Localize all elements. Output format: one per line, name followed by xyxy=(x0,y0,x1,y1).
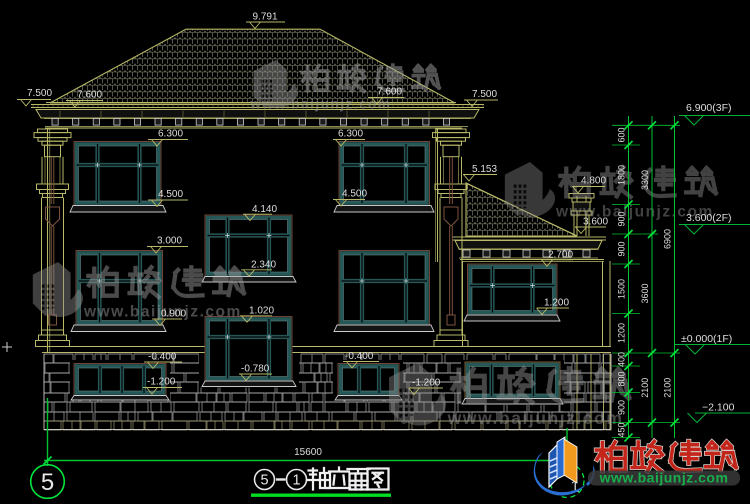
svg-text:-0.400: -0.400 xyxy=(345,351,374,362)
svg-text:1: 1 xyxy=(292,473,300,489)
svg-text:4.500: 4.500 xyxy=(342,189,367,200)
svg-text:15600: 15600 xyxy=(294,447,322,458)
svg-text:450: 450 xyxy=(617,422,627,437)
svg-text:1800: 1800 xyxy=(617,165,627,185)
svg-text:3.600: 3.600 xyxy=(583,217,608,228)
svg-text:3300: 3300 xyxy=(640,170,650,190)
svg-text:9.791: 9.791 xyxy=(253,12,278,23)
svg-text:0.900: 0.900 xyxy=(161,309,186,320)
svg-text:2100: 2100 xyxy=(663,378,673,398)
svg-text:±0.000(1F): ±0.000(1F) xyxy=(681,333,732,345)
svg-text:900: 900 xyxy=(617,241,627,256)
svg-text:900: 900 xyxy=(617,211,627,226)
svg-text:400: 400 xyxy=(617,352,627,367)
svg-text:4.140: 4.140 xyxy=(252,204,277,215)
svg-text:www.baijunjz.com: www.baijunjz.com xyxy=(249,97,391,112)
svg-text:2.340: 2.340 xyxy=(251,260,276,271)
svg-text:600: 600 xyxy=(617,127,627,142)
svg-text:1.200: 1.200 xyxy=(544,298,569,309)
svg-text:5: 5 xyxy=(41,469,54,496)
svg-text:5: 5 xyxy=(260,473,268,489)
svg-text:7.500: 7.500 xyxy=(472,89,497,100)
svg-text:www.baijunjz.com: www.baijunjz.com xyxy=(599,470,729,486)
svg-text:4.800: 4.800 xyxy=(581,176,606,187)
svg-text:-1.200: -1.200 xyxy=(147,377,176,388)
svg-text:5.153: 5.153 xyxy=(472,164,497,175)
svg-text:6.300: 6.300 xyxy=(338,129,363,140)
svg-text:6.900(3F): 6.900(3F) xyxy=(686,102,732,114)
svg-text:1200: 1200 xyxy=(617,323,627,343)
svg-text:7.600: 7.600 xyxy=(77,90,102,101)
svg-text:800: 800 xyxy=(617,371,627,386)
svg-text:-0.400: -0.400 xyxy=(148,352,177,363)
svg-text:3.600(2F): 3.600(2F) xyxy=(686,212,732,224)
svg-text:3600: 3600 xyxy=(640,283,650,303)
svg-text:-1.200: -1.200 xyxy=(412,378,441,389)
svg-text:900: 900 xyxy=(617,400,627,415)
svg-text:7.500: 7.500 xyxy=(27,88,52,99)
svg-text:7.600: 7.600 xyxy=(377,87,402,98)
svg-text:3.000: 3.000 xyxy=(157,236,182,247)
svg-text:−2.100: −2.100 xyxy=(702,402,735,414)
svg-text:1.020: 1.020 xyxy=(249,306,274,317)
svg-text:1500: 1500 xyxy=(617,279,627,299)
svg-text:2.700: 2.700 xyxy=(548,250,573,261)
svg-text:6.300: 6.300 xyxy=(158,129,183,140)
svg-text:www.baijunjz.com: www.baijunjz.com xyxy=(447,408,624,428)
svg-text:6900: 6900 xyxy=(663,229,673,249)
svg-text:-0.780: -0.780 xyxy=(241,364,270,375)
svg-text:4.500: 4.500 xyxy=(158,189,183,200)
svg-text:2100: 2100 xyxy=(640,378,650,398)
